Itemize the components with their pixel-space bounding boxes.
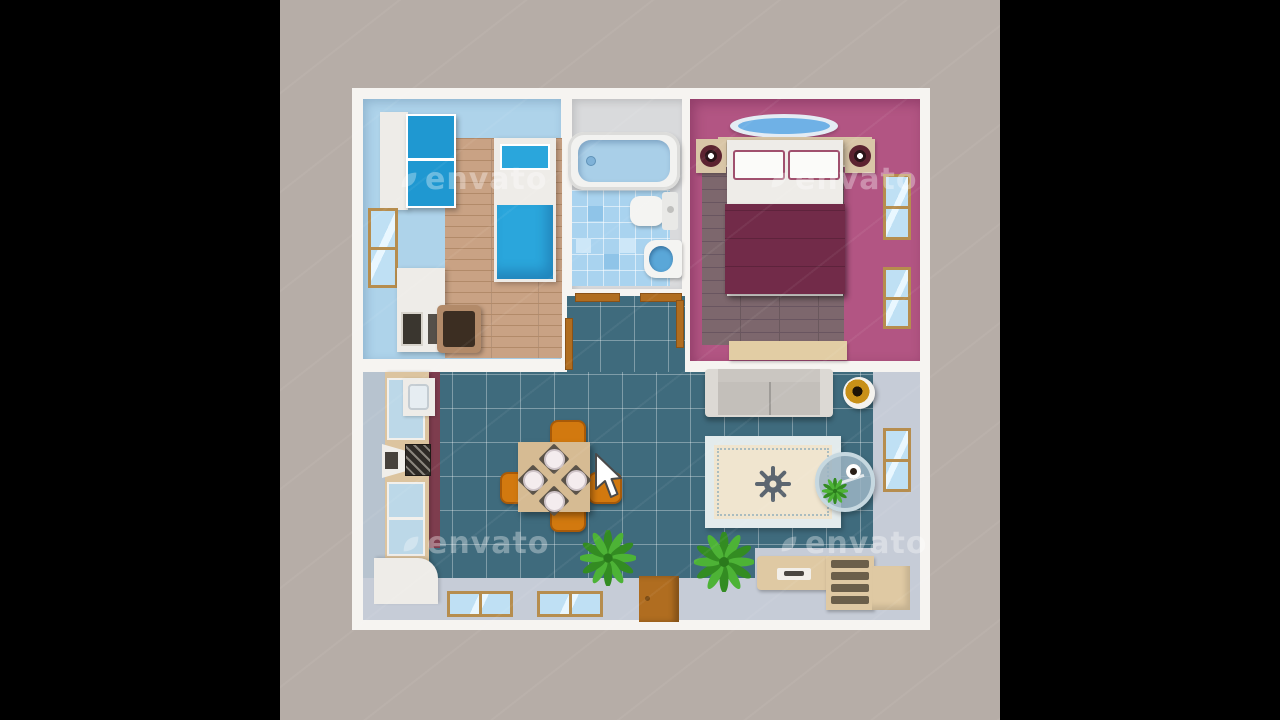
watermark-top-right: envato xyxy=(768,162,917,197)
envato-leaf-icon xyxy=(778,533,800,555)
toilet-bowl xyxy=(630,196,664,226)
stove xyxy=(405,444,431,476)
bottom-window-left xyxy=(447,591,513,617)
shoe-rack-slot-3 xyxy=(831,584,869,592)
hallway-corridor xyxy=(567,296,685,374)
toilet-button xyxy=(667,206,674,213)
single-bed-blanket xyxy=(497,205,553,279)
living-window xyxy=(883,428,911,492)
door-leaf-office xyxy=(565,318,573,370)
bed-blanket xyxy=(725,204,845,294)
video-frame-background: envato envato envato envato xyxy=(280,0,1000,720)
wardrobe-divider xyxy=(406,158,456,161)
door-leaf-bathroom xyxy=(575,293,620,302)
mouse-cursor xyxy=(593,452,623,502)
watermark-text: envato xyxy=(795,162,917,197)
plate-3 xyxy=(566,470,587,491)
coffee-cup xyxy=(846,464,861,479)
floor-plant-left xyxy=(580,530,636,586)
sink-basin xyxy=(649,246,673,272)
plate-2 xyxy=(523,470,544,491)
sofa-back xyxy=(718,369,820,382)
rug-medallion xyxy=(751,464,795,504)
plate-4 xyxy=(544,491,565,512)
shoe-rack-slot-4 xyxy=(831,596,869,604)
bottom-window-left-glass xyxy=(450,594,510,614)
bedroom-window-lower xyxy=(883,267,911,329)
desk-chair-seat xyxy=(443,311,475,347)
kitchen-sink-basin xyxy=(408,384,429,410)
office-window xyxy=(368,208,398,288)
living-left-wall xyxy=(363,372,385,578)
floor-lamp xyxy=(843,377,875,409)
watermark-text: envato xyxy=(805,526,927,561)
bathtub-drain xyxy=(586,156,596,166)
entry-door-knob xyxy=(645,596,650,601)
watermark-text: envato xyxy=(427,526,549,561)
stove-hood-vent xyxy=(385,452,398,469)
floor-plant-right xyxy=(694,532,754,592)
bed-bench xyxy=(729,341,847,360)
envato-leaf-icon xyxy=(398,169,420,191)
coffee-table-plant xyxy=(822,478,848,504)
watermark-bottom-right: envato xyxy=(778,526,927,561)
shoe-rack-slot-1 xyxy=(831,560,869,568)
bottom-window-right-glass xyxy=(540,594,600,614)
bath-tile-accent-3 xyxy=(604,254,619,269)
letterbox-right xyxy=(1000,0,1280,720)
bath-tile-accent-4 xyxy=(576,238,591,253)
sofa-seat xyxy=(718,382,820,415)
plate-1 xyxy=(544,449,565,470)
kitchen-corner-unit xyxy=(374,558,438,604)
watermark-top-left: envato xyxy=(398,162,547,197)
envato-leaf-icon xyxy=(768,169,790,191)
bath-tile-accent-2 xyxy=(620,238,635,253)
living-window-glass xyxy=(886,431,908,489)
bedroom-window-lower-glass xyxy=(886,270,908,326)
floor-plan: envato envato envato envato xyxy=(352,88,930,630)
office-window-glass xyxy=(371,211,395,285)
shoe-rack-side xyxy=(872,566,910,610)
shoe-rack-slot-2 xyxy=(831,572,869,580)
bath-tile-accent-1 xyxy=(588,206,603,221)
letterbox-left xyxy=(0,0,280,720)
door-leaf-bedroom xyxy=(676,300,684,348)
envato-leaf-icon xyxy=(400,533,422,555)
console-remote xyxy=(784,571,804,576)
watermark-bottom-left: envato xyxy=(400,526,549,561)
desk-laptop xyxy=(401,312,423,346)
kitchen-cabinet-divider xyxy=(387,517,425,520)
speaker-left xyxy=(700,145,722,167)
ceiling-lamp xyxy=(738,118,830,134)
watermark-text: envato xyxy=(425,162,547,197)
bottom-window-right xyxy=(537,591,603,617)
